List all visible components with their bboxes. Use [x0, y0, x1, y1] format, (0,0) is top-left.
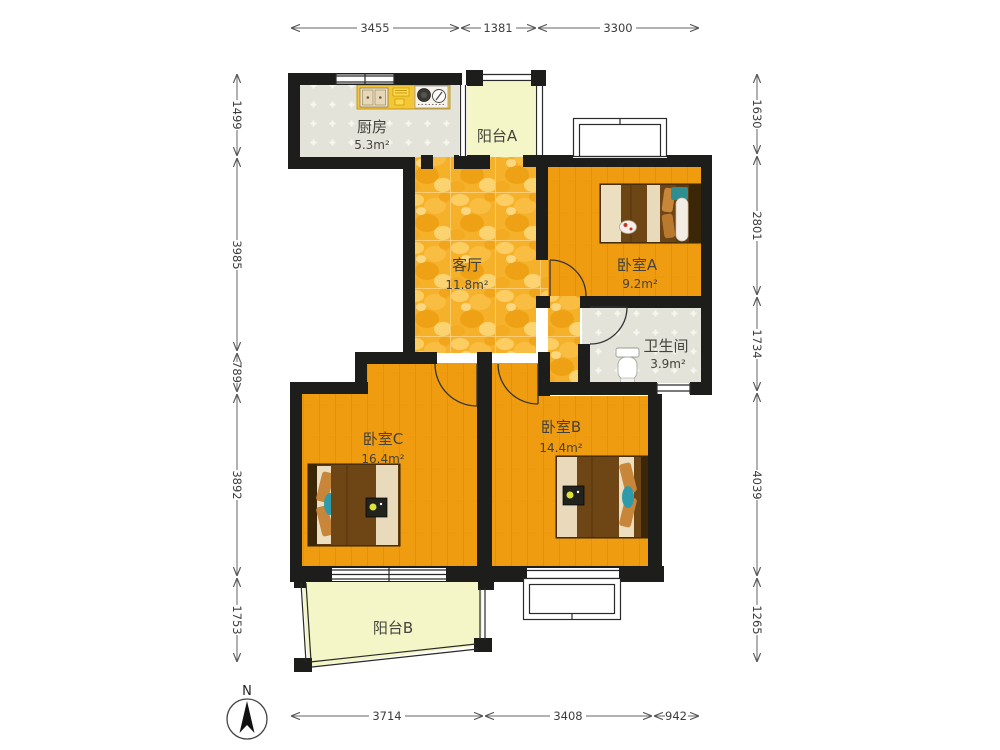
- room-balcony-a: [467, 78, 536, 157]
- dimension-label: 1734: [750, 329, 764, 358]
- stove-icon: [415, 86, 448, 108]
- kitchen-label: 厨房: [357, 118, 387, 136]
- bedroom-b-label: 卧室B: [541, 418, 581, 436]
- dimension-label: 2801: [750, 211, 764, 240]
- balcony-a-floor: [467, 78, 536, 157]
- bedroom-b-area: 14.4m²: [539, 441, 582, 455]
- dimension-label: 4039: [750, 470, 764, 499]
- balcony-a-label: 阳台A: [477, 127, 518, 145]
- dimension-label: 3892: [230, 470, 244, 499]
- floor-plan-canvas: 厨房 5.3m² 阳台A 客厅 11.8m² 卧室A 9.2m² 卫生间 3.9…: [0, 0, 1000, 750]
- kitchen-counter-icon: [357, 85, 450, 109]
- dimension-label: 942: [665, 709, 687, 723]
- balcony-b-label: 阳台B: [373, 619, 413, 637]
- bed-icon-bedroom-a: [600, 184, 701, 243]
- living-area: 11.8m²: [445, 278, 488, 292]
- bedroom-c-label: 卧室C: [363, 430, 403, 448]
- bedroom-c-area: 16.4m²: [361, 452, 404, 466]
- bedroom-a-label: 卧室A: [617, 256, 658, 274]
- dimension-label: 1630: [750, 99, 764, 128]
- north-arrow-icon: N: [227, 684, 267, 739]
- window-bathroom: [657, 383, 690, 394]
- dimension-label: 1265: [750, 605, 764, 634]
- dimension-label: 3408: [553, 709, 582, 723]
- dimension-label: 789: [230, 361, 244, 383]
- dimension-label: 3455: [360, 21, 389, 35]
- dimension-label: 1499: [230, 100, 244, 129]
- bathroom-label: 卫生间: [643, 337, 688, 355]
- bathroom-area: 3.9m²: [650, 357, 686, 371]
- dimension-label: 3300: [603, 21, 632, 35]
- bedroom-a-area: 9.2m²: [622, 277, 658, 291]
- living-floor: [415, 157, 536, 353]
- floor-plan-page: 厨房 5.3m² 阳台A 客厅 11.8m² 卧室A 9.2m² 卫生间 3.9…: [0, 0, 1000, 750]
- dimension-label: 1381: [483, 21, 512, 35]
- window-balcony-a-top: [483, 73, 531, 82]
- sink-icon: [360, 88, 388, 107]
- kitchen-area: 5.3m²: [354, 138, 390, 152]
- window-kitchen: [336, 74, 394, 85]
- slider-door-bedroom-c: [332, 568, 446, 581]
- bay-window-bedroom-a: [573, 118, 667, 158]
- living-label: 客厅: [452, 256, 482, 274]
- north-label: N: [242, 684, 252, 699]
- bed-icon-bedroom-c: [308, 464, 400, 546]
- nightstand-icon: [366, 498, 387, 517]
- bay-window-bedroom-b: [523, 578, 621, 620]
- window-balcony-a-left: [459, 85, 467, 156]
- dimension-label: 3985: [230, 240, 244, 269]
- bed-icon-bedroom-b: [556, 456, 650, 538]
- nightstand-icon: [563, 486, 584, 505]
- dimension-label: 1753: [230, 605, 244, 634]
- tray-icon: [620, 221, 637, 234]
- window-balcony-a-right: [535, 86, 544, 155]
- dimension-label: 3714: [372, 709, 401, 723]
